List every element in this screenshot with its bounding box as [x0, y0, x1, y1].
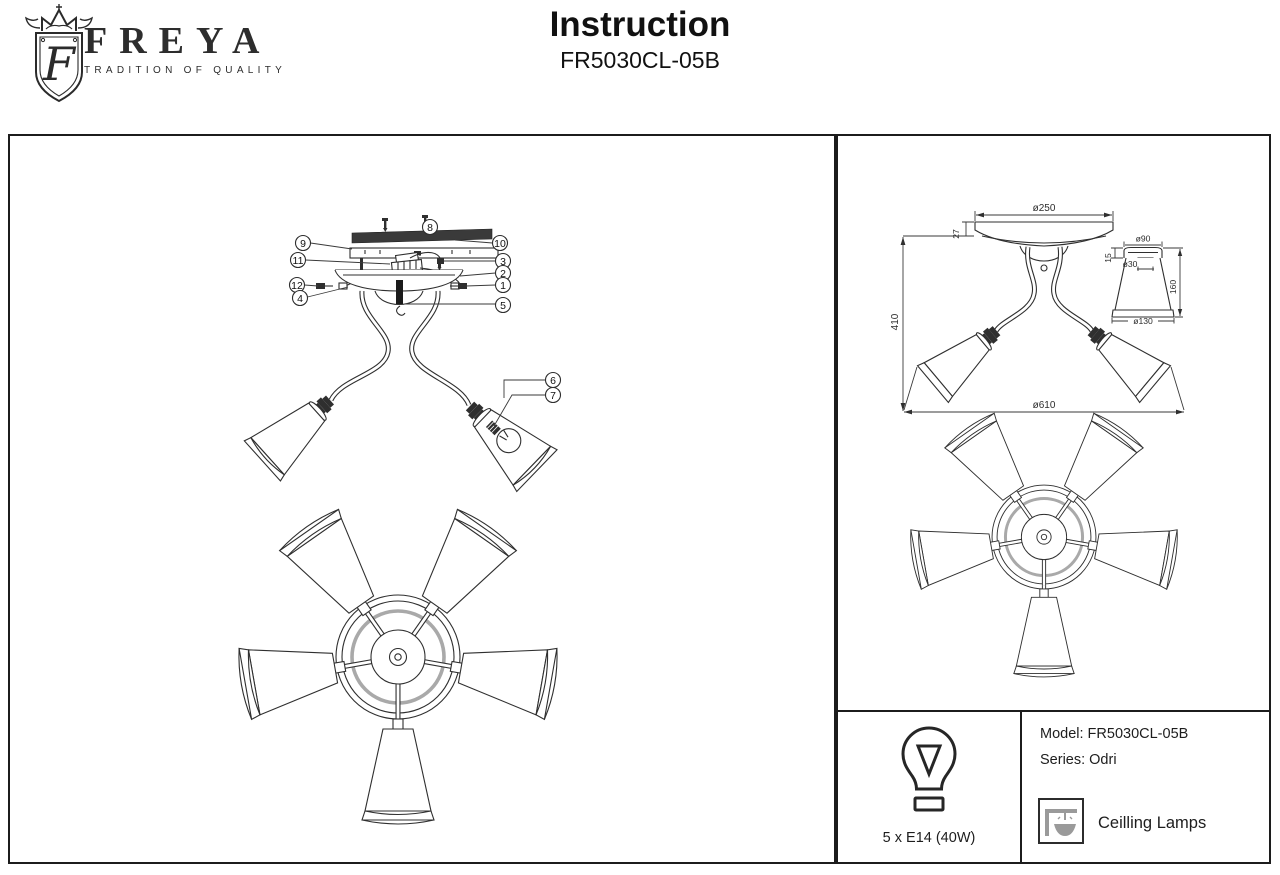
dim-shade-height: 160: [1168, 280, 1178, 295]
dim-canopy-height: 27: [951, 229, 961, 239]
callout-11: 11: [293, 255, 304, 267]
wire-connector: [437, 258, 444, 264]
dim-canopy-diameter-group: ø250: [975, 203, 1113, 221]
dim-shade-top-diameter: ø90: [1136, 234, 1151, 244]
bottom-view-right: [908, 411, 1181, 677]
right-arm: [412, 291, 469, 405]
mounting-screws: [382, 215, 428, 232]
side-bolt-left: [316, 283, 333, 289]
shade-detail-view: ø90 15 ø30 160: [1103, 234, 1183, 327]
dim-socket-diameter: ø30: [1123, 259, 1138, 269]
callout-5: 5: [500, 300, 506, 312]
dim-shade-neck-group: 15: [1103, 248, 1123, 263]
callout-12: 12: [291, 280, 303, 292]
exploded-view: 8 9 10 11 3 2 12 1 4 5 6: [235, 215, 561, 824]
bottom-view-left: [235, 506, 561, 824]
callout-8: 8: [427, 222, 433, 234]
callout-4: 4: [297, 293, 303, 305]
callout-6: 6: [550, 375, 556, 387]
dim-shade-bottom-diameter: ø130: [1133, 316, 1153, 326]
callout-7: 7: [550, 390, 556, 402]
dim-overall-height: 410: [890, 313, 901, 330]
dim-shade-neck-height: 15: [1103, 253, 1113, 263]
callout-9: 9: [300, 238, 306, 250]
callout-1: 1: [500, 280, 506, 292]
instruction-sheet: F FREYA TRADITION OF QUALITY Instruction…: [0, 0, 1280, 875]
callout-10: 10: [494, 238, 506, 250]
technical-drawings: 8 9 10 11 3 2 12 1 4 5 6: [0, 0, 1280, 875]
dim-shade-top-group: ø90: [1124, 234, 1162, 248]
dim-canopy: [975, 222, 1113, 271]
left-arm: [331, 291, 388, 400]
dim-canopy-diameter: ø250: [1033, 203, 1056, 214]
dim-overall-diameter: ø610: [1033, 400, 1056, 411]
